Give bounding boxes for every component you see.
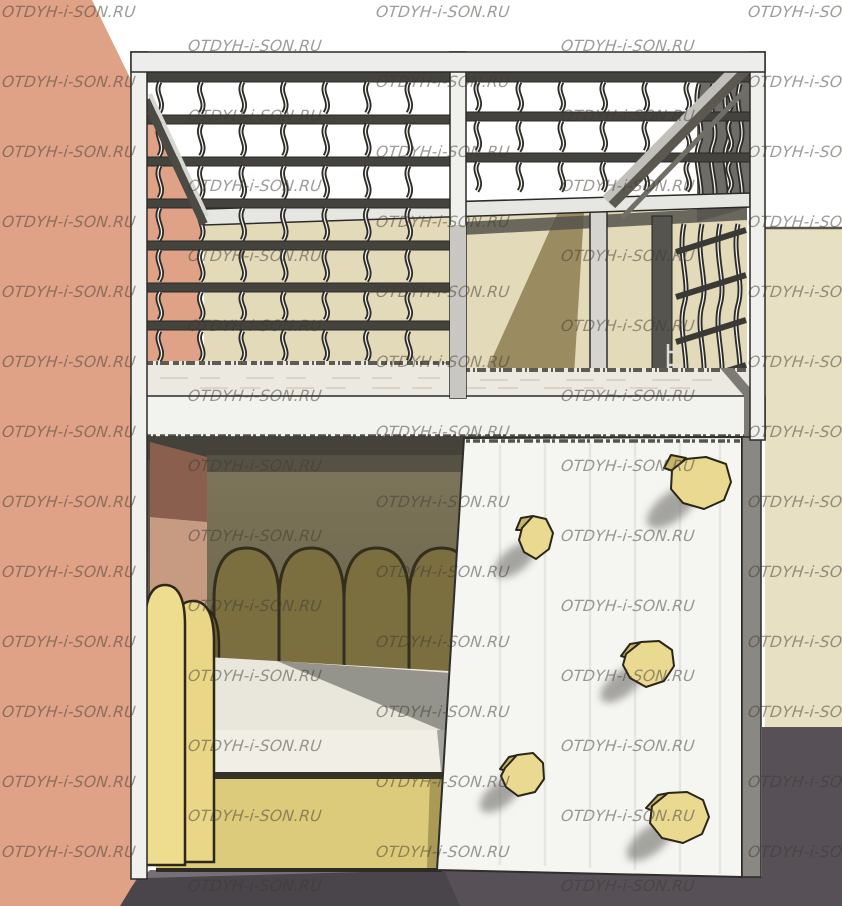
side-arch-front	[145, 585, 185, 865]
floor-shadow	[110, 870, 460, 906]
lattice-rail	[147, 241, 452, 250]
wall-side-strip	[742, 437, 761, 877]
lower-bunk	[145, 437, 474, 872]
bed-base-bottom-line	[156, 868, 442, 872]
product-render: OTDYH-i-SON.RUOTDYH-i-SON.RUOTDYH-i-SON.…	[0, 0, 842, 906]
right-post	[750, 52, 765, 440]
right-wall	[765, 228, 842, 727]
lattice-rail	[147, 321, 452, 330]
bunk-back-wall-top	[207, 455, 466, 472]
loft-platform	[131, 361, 765, 437]
top-beam	[131, 52, 765, 72]
climbing-wall	[437, 437, 761, 877]
loft-bed-render	[0, 0, 842, 906]
left-post	[131, 52, 147, 879]
middle-post-shade	[450, 225, 466, 398]
lattice-rail	[466, 153, 750, 162]
lattice-rail	[147, 115, 452, 124]
lattice-rail	[147, 157, 452, 166]
platform-fascia	[131, 396, 765, 437]
left-wall	[0, 0, 137, 906]
lattice-rail	[147, 283, 452, 292]
